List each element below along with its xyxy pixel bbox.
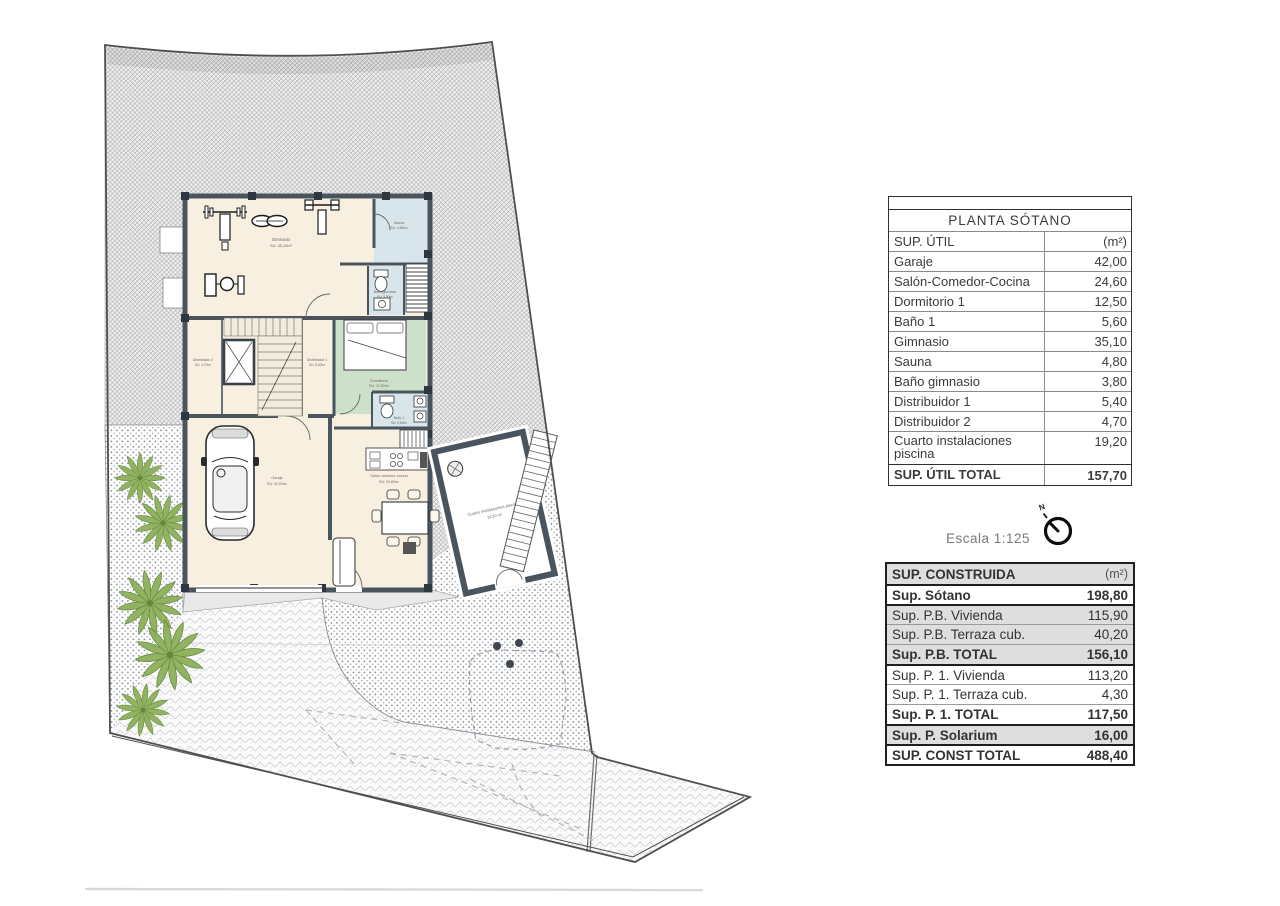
room-area-distribuidor-1: SU: 5,40m² xyxy=(309,363,325,367)
side-table xyxy=(403,542,416,554)
car xyxy=(201,426,259,540)
table-row: Sauna 4,80 xyxy=(889,351,1131,371)
table-row: Distribuidor 1 5,40 xyxy=(889,391,1131,411)
table-sup-construida: SUP. CONSTRUIDA (m²) Sup. Sótano 198,80 … xyxy=(885,562,1135,766)
room-label-bano-1: Baño 1 xyxy=(394,416,405,420)
toilet-bano1 xyxy=(380,396,394,418)
room-label-sauna: Sauna xyxy=(394,221,404,225)
table-row: Sup. Sótano 198,80 xyxy=(887,584,1133,604)
sofa xyxy=(333,538,355,586)
table-total-row: SUP. ÚTIL TOTAL 157,70 xyxy=(889,464,1131,485)
table-row: Sup. P. 1. TOTAL 117,50 xyxy=(887,704,1133,724)
room-area-bano-1: SU: 5,60m² xyxy=(391,421,407,425)
garden-light xyxy=(493,642,501,650)
north-label: N xyxy=(1038,502,1046,512)
table-sup-util: PLANTA SÓTANO SUP. ÚTIL (m²) Garaje 42,0… xyxy=(888,196,1132,486)
side-stair xyxy=(406,264,428,312)
col-label: SUP. ÚTIL xyxy=(889,232,1045,251)
table-row: Sup. P. 1. Vivienda 113,20 xyxy=(887,664,1133,684)
toilet-gym xyxy=(374,270,388,292)
table-header-row: SUP. ÚTIL (m²) xyxy=(889,231,1131,251)
sink-gym xyxy=(374,298,390,310)
table-row: Sup. P.B. Vivienda 115,90 xyxy=(887,604,1133,624)
room-area-distribuidor-2: SU: 4,70m² xyxy=(195,363,211,367)
table-row: Baño 1 5,60 xyxy=(889,311,1131,331)
table-title-text: PLANTA SÓTANO xyxy=(948,213,1072,228)
fridge xyxy=(420,452,427,468)
elevator xyxy=(224,340,254,384)
light-well xyxy=(160,227,185,253)
scale-label: Escala 1:125 xyxy=(946,531,1030,546)
table-row: Sup. P. Solarium 16,00 xyxy=(887,724,1133,744)
room-label-dormitorio: Dormitorio xyxy=(370,379,388,383)
table-title: PLANTA SÓTANO xyxy=(889,209,1131,231)
table-total-row: SUP. CONST TOTAL 488,40 xyxy=(887,744,1133,764)
room-area-salon: SU: 24,60m² xyxy=(379,480,399,484)
room-area-gimnasio: SU: 35,10m² xyxy=(270,243,293,248)
garage-door xyxy=(196,585,322,592)
room-label-bano-gimnasio: Baño gimnasio xyxy=(374,290,397,294)
room-area-sauna: SU: 4,80m² xyxy=(390,226,408,230)
table-row: Distribuidor 2 4,70 xyxy=(889,411,1131,431)
room-area-bano-gimnasio: SU: 3,80m² xyxy=(377,295,393,299)
room-label-distribuidor-2: Distribuidor 2 xyxy=(193,358,213,362)
compass-needle xyxy=(1049,522,1058,531)
weights-icon xyxy=(252,216,287,227)
page-edge-line xyxy=(85,889,703,890)
col-unit: (m²) xyxy=(1045,232,1131,251)
room-label-distribuidor-1: Distribuidor 1 xyxy=(307,358,327,362)
compass-tick xyxy=(1044,514,1048,519)
table-row xyxy=(889,197,1131,209)
garden-light xyxy=(515,639,523,647)
room-area-dormitorio: SU: 12,50m² xyxy=(369,384,389,388)
garden-light xyxy=(506,660,514,668)
table-row: Salón-Comedor-Cocina 24,60 xyxy=(889,271,1131,291)
table-row: Sup. P.B. Terraza cub. 40,20 xyxy=(887,624,1133,644)
bed xyxy=(344,320,406,370)
mirror-right xyxy=(253,457,259,466)
table-header-row: SUP. CONSTRUIDA (m²) xyxy=(887,564,1133,584)
room-sauna xyxy=(374,199,428,264)
light-well xyxy=(163,278,185,308)
table-row: Dormitorio 1 12,50 xyxy=(889,291,1131,311)
table-row: Sup. P.B. TOTAL 156,10 xyxy=(887,644,1133,664)
north-arrow: N xyxy=(1034,498,1080,557)
room-label-salon: Salón comedor cocina xyxy=(370,474,408,478)
table-row: Baño gimnasio 3,80 xyxy=(889,371,1131,391)
table-row: Cuarto instalaciones piscina 19,20 xyxy=(889,431,1131,464)
floor-plan-page: Cuarto instalaciones piscina 19,20 m² Gi… xyxy=(0,0,1280,906)
table-row: Garaje 42,00 xyxy=(889,251,1131,271)
room-label-gimnasio: Gimnasio xyxy=(272,237,291,242)
table-row: Sup. P. 1. Terraza cub. 4,30 xyxy=(887,684,1133,704)
table-row: Gimnasio 35,10 xyxy=(889,331,1131,351)
room-area-garaje: SU: 42,00m² xyxy=(267,482,287,486)
mirror-left xyxy=(201,457,207,466)
room-label-garaje: Garaje xyxy=(271,476,282,480)
